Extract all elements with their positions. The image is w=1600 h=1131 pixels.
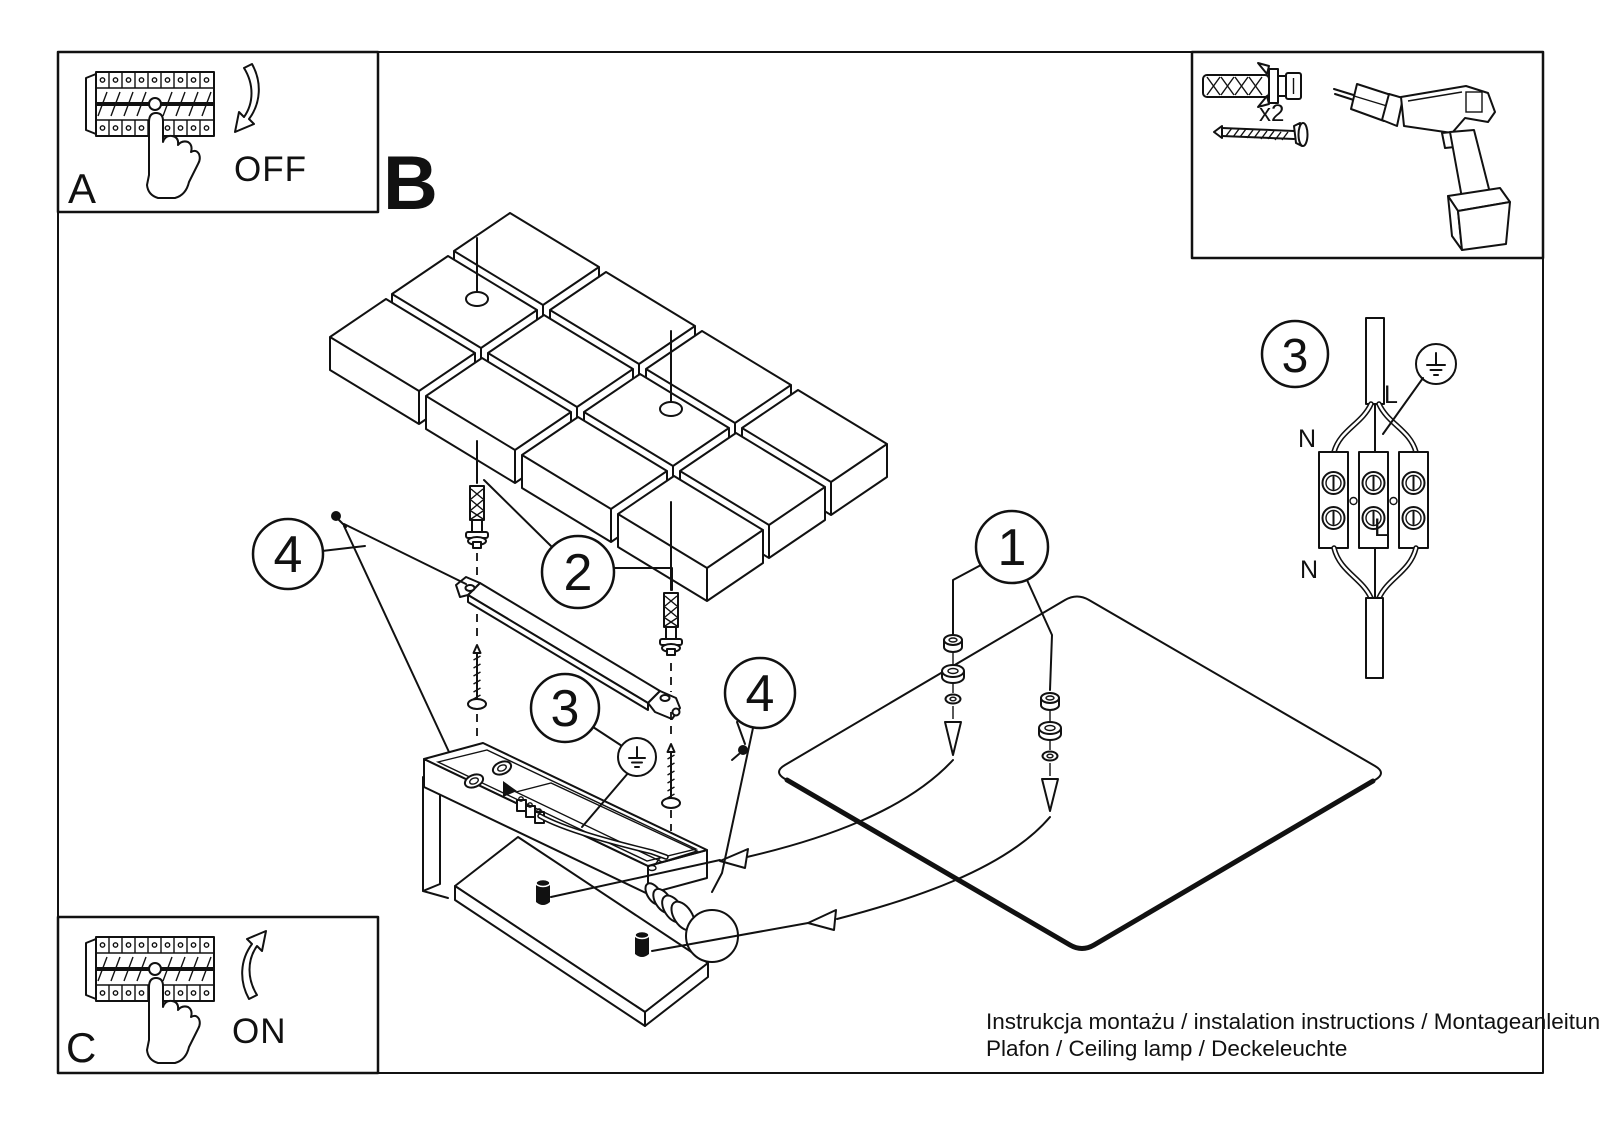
wiring-step-number: 3 <box>1282 330 1309 383</box>
footer-title: Instrukcja montażu / instalation instruc… <box>986 1009 1600 1034</box>
neutral-label-bottom: N <box>1300 556 1318 584</box>
mains-cable-bottom <box>1366 598 1383 678</box>
neutral-label-top: N <box>1298 425 1316 453</box>
step-b-label: B <box>383 141 438 226</box>
stud-peg-1 <box>536 880 550 906</box>
callout-1-number: 1 <box>998 519 1027 577</box>
step-c-label: C <box>66 1024 96 1071</box>
drill-hole-2 <box>660 402 682 416</box>
step-a-box: OFF A <box>58 52 378 212</box>
tools-box: x2 <box>1192 52 1543 258</box>
mains-cable-top <box>1366 318 1384 404</box>
callout-2-number: 2 <box>564 544 593 602</box>
wall-plug-icon <box>466 486 488 548</box>
anchor-quantity-label: x2 <box>1259 100 1284 127</box>
drill-hole-1 <box>466 292 488 306</box>
instruction-sheet: B <box>0 0 1600 1131</box>
callout-4-right-number: 4 <box>746 665 775 723</box>
callout-3-number: 3 <box>551 680 580 738</box>
wall-plug-icon <box>660 593 682 655</box>
live-label-top: L <box>1384 381 1398 409</box>
callout-4-left-number: 4 <box>274 526 303 584</box>
step-a-label: A <box>68 165 96 212</box>
footer-subtitle: Plafon / Ceiling lamp / Deckeleuchte <box>986 1036 1347 1061</box>
earth-symbol-icon <box>618 738 656 776</box>
live-label-bottom: L <box>1374 514 1388 542</box>
stud-peg-2 <box>635 932 649 958</box>
on-label: ON <box>232 1012 287 1051</box>
step-c-box: ON C <box>58 917 378 1073</box>
off-label: OFF <box>234 150 307 189</box>
